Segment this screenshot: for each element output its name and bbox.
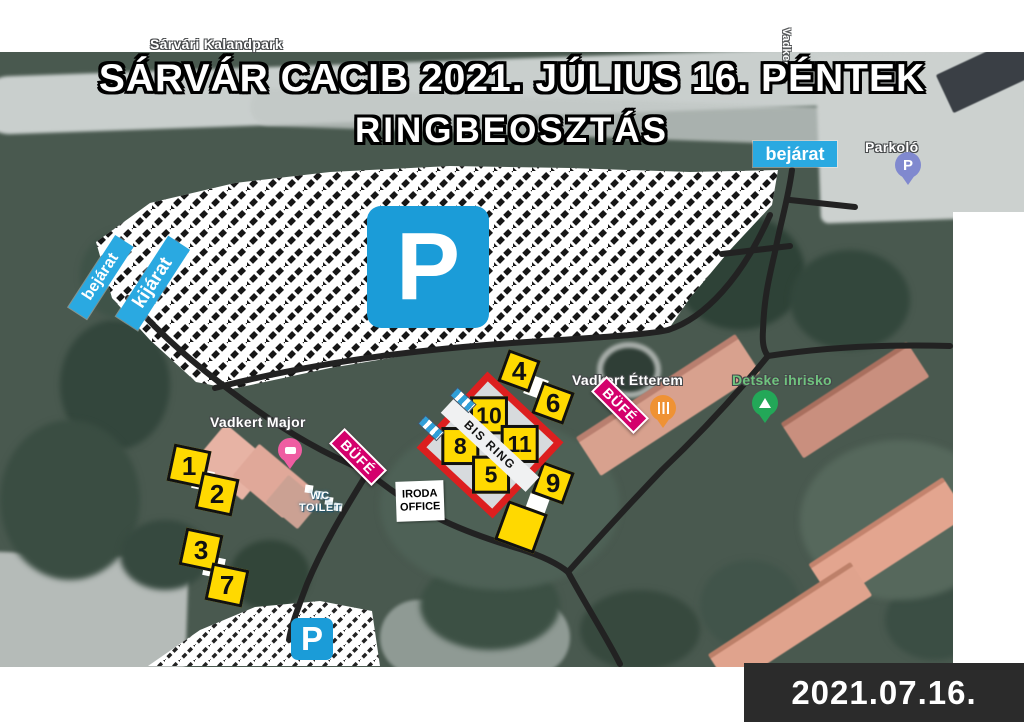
pin-tail <box>758 413 772 423</box>
pin-tail <box>901 175 915 185</box>
ring-number: 2 <box>210 479 224 510</box>
ring-number: 1 <box>182 451 196 482</box>
wc-label: WC TOILET <box>288 490 352 514</box>
wc-line2: TOILET <box>288 502 352 514</box>
ring-number: 7 <box>220 570 234 601</box>
ring-number: 6 <box>546 388 560 419</box>
parking-sign-big: P <box>367 206 489 328</box>
pin-tail <box>283 459 297 469</box>
parking-pin-icon: P <box>895 152 921 178</box>
parking-sign-small: P <box>291 618 333 660</box>
ring-number: 3 <box>194 535 208 566</box>
pin-tail <box>656 418 670 428</box>
park-pin-icon <box>752 390 778 416</box>
office-box: IRODA OFFICE <box>395 480 444 522</box>
lodging-pin-icon <box>278 438 302 462</box>
poster-title: SÁRVÁR CACIB 2021. JÚLIUS 16. PÉNTEK <box>0 57 1024 101</box>
map-label-playground: Detske ihrisko <box>732 372 832 388</box>
map-label-restaurant: Vadkert Étterem <box>572 372 683 388</box>
ring-marker-7: 7 <box>204 562 249 607</box>
ring-layout-poster: Sárvári Kalandpark Vadkert u. Vadkert Ma… <box>0 0 1024 722</box>
restaurant-pin-icon <box>650 395 676 421</box>
office-line1: IRODA <box>402 487 438 501</box>
map-label-adventure-park: Sárvári Kalandpark <box>150 36 283 52</box>
map-label-farm: Vadkert Major <box>210 414 306 430</box>
ring-number: 5 <box>485 461 498 488</box>
bed-icon <box>285 447 296 454</box>
parking-pin-letter: P <box>903 157 913 174</box>
poster-subtitle: RINGBEOSZTÁS <box>0 111 1024 151</box>
ring-number: 8 <box>454 433 467 460</box>
tree-icon <box>759 398 771 408</box>
office-line2: OFFICE <box>400 500 441 514</box>
date-badge: 2021.07.16. <box>744 663 1024 722</box>
ring-number: 9 <box>546 468 560 499</box>
fork-knife-icon <box>658 402 669 414</box>
wc-line1: WC <box>288 490 352 502</box>
ring-number: 4 <box>512 356 526 387</box>
ring-marker-2: 2 <box>194 471 239 516</box>
